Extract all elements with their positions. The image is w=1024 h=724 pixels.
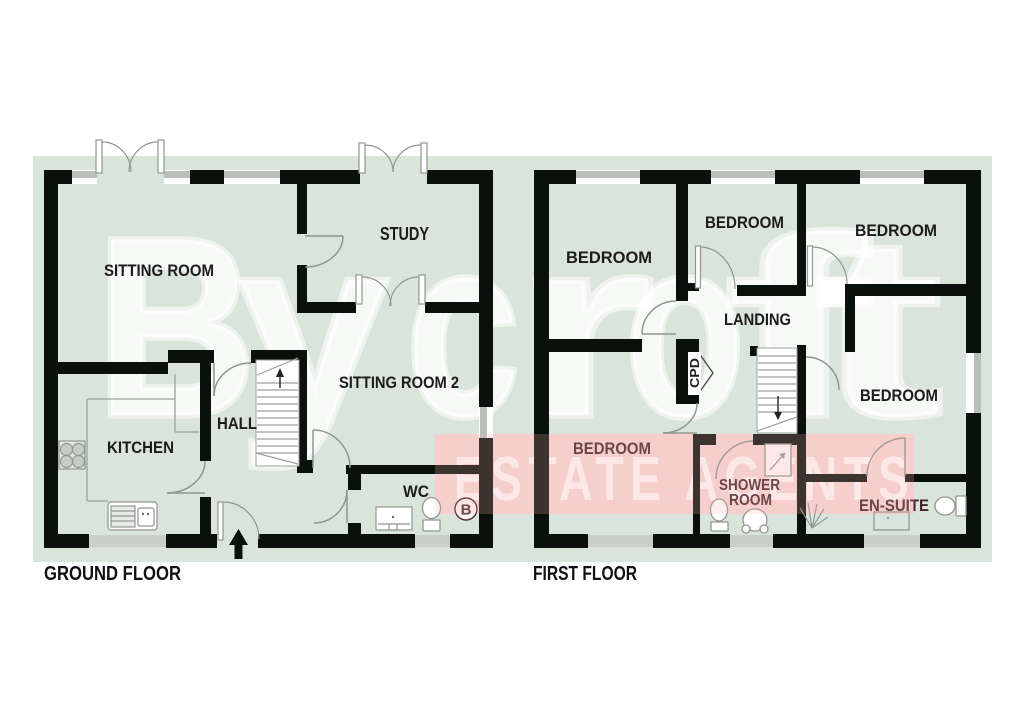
svg-text:BEDROOM: BEDROOM [566, 248, 652, 267]
svg-text:FIRST FLOOR: FIRST FLOOR [533, 563, 637, 585]
svg-text:LANDING: LANDING [724, 310, 791, 329]
svg-text:BEDROOM: BEDROOM [860, 386, 938, 405]
svg-text:GROUND FLOOR: GROUND FLOOR [44, 563, 181, 585]
svg-text:CPD: CPD [688, 358, 702, 388]
svg-text:STUDY: STUDY [380, 224, 429, 244]
svg-text:KITCHEN: KITCHEN [107, 438, 174, 457]
svg-text:SITTING ROOM 2: SITTING ROOM 2 [339, 373, 459, 392]
svg-text:SITTING ROOM: SITTING ROOM [104, 261, 214, 280]
svg-text:WC: WC [403, 482, 429, 501]
svg-text:BEDROOM: BEDROOM [855, 221, 937, 240]
svg-text:BEDROOM: BEDROOM [705, 213, 784, 232]
svg-text:HALL: HALL [217, 414, 257, 433]
